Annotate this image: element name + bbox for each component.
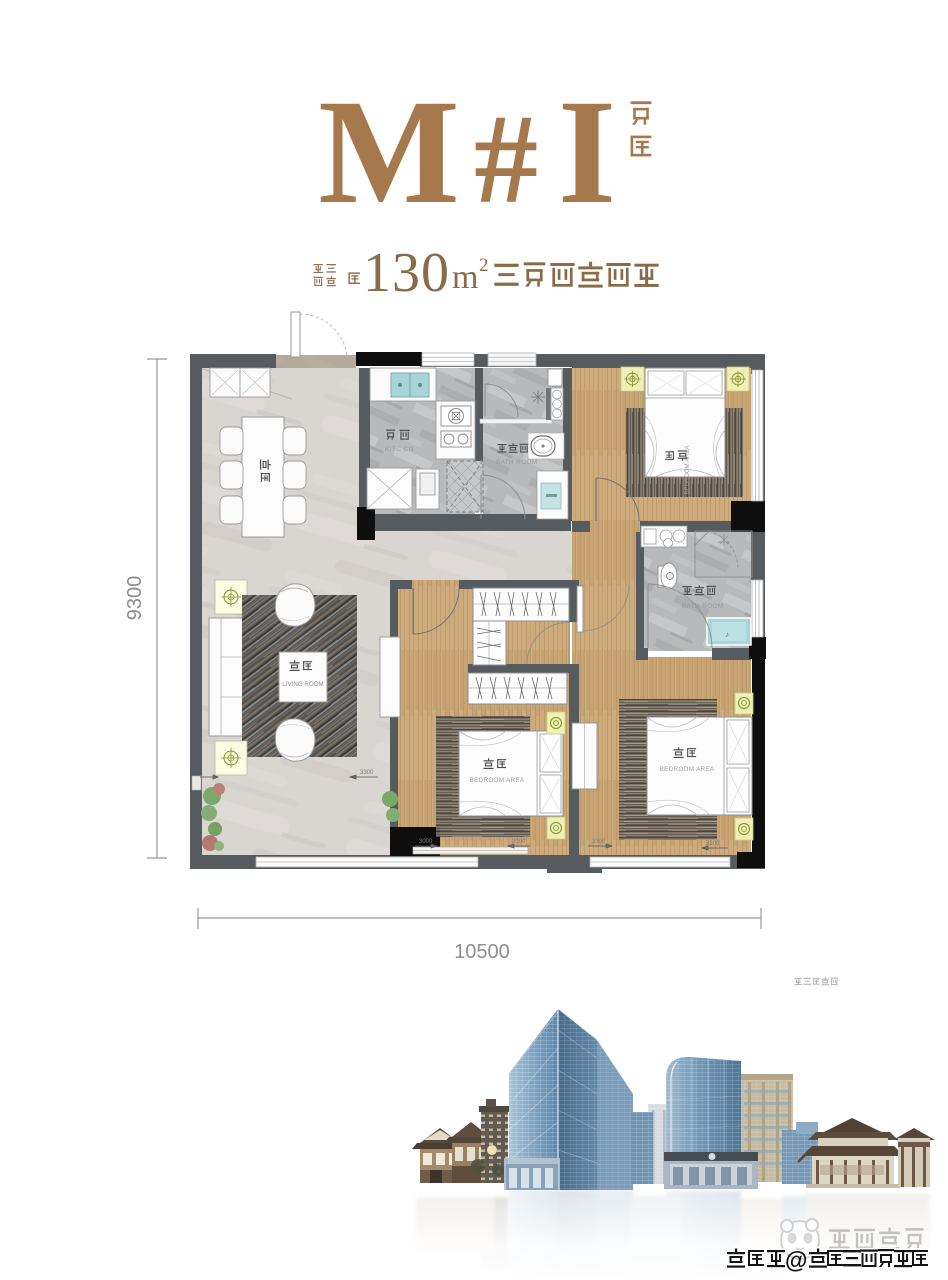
svg-text:BEDROOM AREA: BEDROOM AREA bbox=[685, 446, 691, 495]
svg-text:@: @ bbox=[785, 1247, 807, 1273]
svg-text:3000: 3000 bbox=[512, 839, 526, 845]
svg-text:3300: 3300 bbox=[706, 841, 720, 847]
svg-text:LIVING ROOM: LIVING ROOM bbox=[282, 681, 323, 688]
svg-text:3300: 3300 bbox=[360, 770, 374, 776]
svg-text:BATH ROOM: BATH ROOM bbox=[496, 459, 538, 466]
svg-text:KITC CN: KITC CN bbox=[385, 446, 414, 453]
svg-text:BATH ROOM: BATH ROOM bbox=[682, 603, 724, 610]
svg-text:3000: 3000 bbox=[419, 839, 433, 845]
svg-text:BEDROOM AREA: BEDROOM AREA bbox=[470, 777, 525, 784]
svg-text:M: M bbox=[318, 69, 460, 235]
svg-text:9300: 9300 bbox=[124, 576, 146, 621]
svg-text:10500: 10500 bbox=[454, 941, 510, 963]
svg-text:3300: 3300 bbox=[592, 839, 606, 845]
svg-text:#: # bbox=[474, 88, 538, 230]
svg-text:I: I bbox=[558, 69, 616, 235]
svg-text:2: 2 bbox=[479, 255, 489, 276]
svg-text:♪: ♪ bbox=[725, 630, 729, 639]
svg-text:m: m bbox=[452, 259, 478, 296]
svg-text:130: 130 bbox=[363, 242, 450, 304]
svg-text:BEDROOM AREA: BEDROOM AREA bbox=[660, 766, 715, 773]
